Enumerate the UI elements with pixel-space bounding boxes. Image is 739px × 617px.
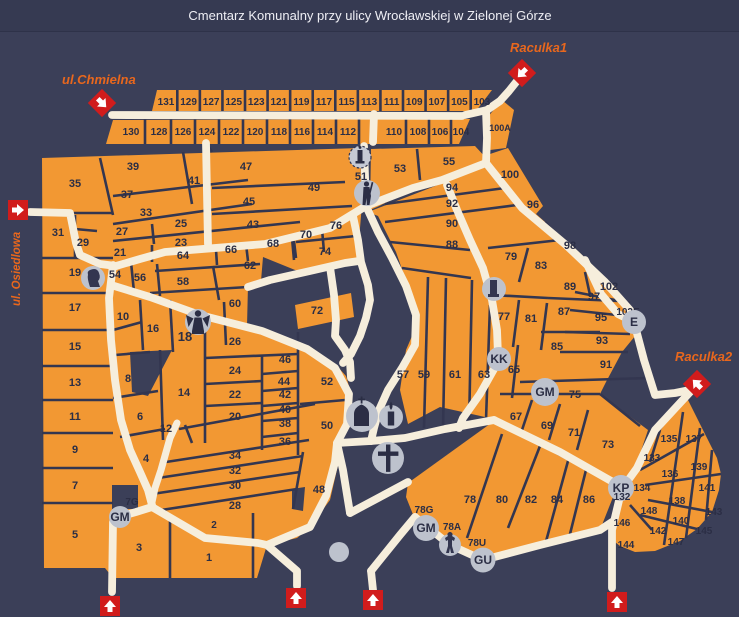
svg-text:GU: GU [474,553,492,567]
svg-text:113: 113 [361,97,378,108]
svg-text:148: 148 [641,506,658,517]
svg-text:80: 80 [496,494,508,506]
svg-text:71: 71 [568,427,580,439]
svg-text:95: 95 [595,312,607,324]
svg-text:8: 8 [125,373,131,385]
svg-text:98: 98 [564,240,576,252]
svg-text:13: 13 [69,377,81,389]
svg-text:78: 78 [464,494,476,506]
svg-text:64: 64 [177,250,190,262]
svg-text:146: 146 [614,518,631,529]
svg-text:12: 12 [160,423,172,435]
svg-text:4: 4 [143,453,150,465]
svg-text:50: 50 [321,420,333,432]
svg-text:30: 30 [229,480,241,492]
svg-text:11: 11 [69,411,81,423]
svg-text:121: 121 [271,97,288,108]
svg-text:6: 6 [137,411,143,423]
svg-text:38: 38 [279,418,291,430]
svg-text:104: 104 [453,127,470,138]
svg-text:49: 49 [308,182,320,194]
svg-text:131: 131 [158,97,175,108]
svg-text:88: 88 [446,239,458,251]
svg-text:41: 41 [188,175,200,187]
svg-text:62: 62 [244,260,256,272]
svg-text:48: 48 [313,484,325,496]
svg-text:109: 109 [406,97,423,108]
svg-text:83: 83 [535,260,547,272]
svg-text:77: 77 [498,311,510,323]
svg-text:68: 68 [267,238,279,250]
svg-text:36: 36 [279,436,291,448]
svg-text:103: 103 [474,97,491,108]
svg-text:GM: GM [110,510,129,524]
svg-text:79: 79 [505,251,517,263]
svg-text:94: 94 [446,182,459,194]
svg-text:24: 24 [229,365,242,377]
svg-text:105: 105 [451,97,468,108]
svg-text:58: 58 [177,276,189,288]
svg-text:72: 72 [311,305,323,317]
svg-text:78G: 78G [415,505,434,516]
svg-text:65: 65 [508,364,520,376]
svg-text:60: 60 [229,298,241,310]
svg-text:112: 112 [340,127,357,138]
svg-text:91: 91 [600,359,612,371]
svg-text:129: 129 [180,97,197,108]
svg-text:27: 27 [116,226,128,238]
svg-text:141: 141 [699,483,716,494]
svg-text:10: 10 [117,311,129,323]
svg-text:44: 44 [278,376,291,388]
svg-text:75: 75 [569,389,581,401]
svg-text:GM: GM [416,521,435,535]
svg-text:115: 115 [338,97,355,108]
svg-text:55: 55 [443,156,455,168]
svg-text:7G: 7G [125,497,139,508]
svg-text:GM: GM [535,385,554,399]
svg-text:145: 145 [696,526,713,537]
svg-text:5: 5 [72,529,78,541]
svg-text:126: 126 [175,127,192,138]
svg-text:19: 19 [69,267,81,279]
svg-text:134: 134 [634,483,651,494]
svg-text:21: 21 [114,247,126,259]
svg-text:132: 132 [614,492,631,503]
svg-text:20: 20 [229,411,241,423]
svg-text:2: 2 [211,520,217,531]
svg-text:15: 15 [69,341,81,353]
svg-text:78U: 78U [468,538,486,549]
svg-text:74: 74 [319,246,332,258]
svg-text:87: 87 [558,306,570,318]
svg-text:135: 135 [661,434,678,445]
svg-text:Raculka2: Raculka2 [675,349,733,364]
svg-text:122: 122 [223,127,240,138]
svg-text:1: 1 [206,552,212,564]
svg-text:81: 81 [525,313,537,325]
svg-text:125: 125 [225,97,242,108]
svg-text:63: 63 [478,369,490,381]
svg-text:117: 117 [316,97,333,108]
svg-text:84: 84 [551,494,564,506]
svg-text:69: 69 [541,420,553,432]
svg-text:31: 31 [52,227,64,239]
svg-text:47: 47 [240,161,252,173]
svg-text:100: 100 [501,169,519,181]
svg-text:86: 86 [583,494,595,506]
svg-text:16: 16 [147,323,159,335]
svg-text:73: 73 [602,439,614,451]
svg-text:KK: KK [490,352,508,366]
svg-text:142: 142 [650,526,667,537]
svg-text:70: 70 [300,229,312,241]
svg-text:139: 139 [691,462,708,473]
svg-text:96: 96 [527,199,539,211]
svg-text:90: 90 [446,218,458,230]
svg-text:32: 32 [229,465,241,477]
svg-text:54: 54 [109,269,122,281]
svg-text:130: 130 [123,127,140,138]
svg-text:128: 128 [151,127,168,138]
svg-text:118: 118 [271,127,288,138]
svg-text:106: 106 [432,127,449,138]
svg-text:9: 9 [72,444,78,456]
svg-text:ul. Osiedlowa: ul. Osiedlowa [11,231,23,306]
svg-text:39: 39 [127,161,139,173]
svg-text:14: 14 [178,387,191,399]
svg-text:43: 43 [247,219,259,231]
svg-text:93: 93 [596,335,608,347]
svg-text:34: 34 [229,450,242,462]
svg-text:110: 110 [386,127,403,138]
svg-text:56: 56 [134,272,146,284]
svg-text:85: 85 [551,341,563,353]
svg-text:119: 119 [293,97,310,108]
svg-text:89: 89 [564,281,576,293]
svg-text:57: 57 [397,369,409,381]
svg-text:78A: 78A [443,522,461,533]
svg-text:17: 17 [69,302,81,314]
svg-text:107: 107 [428,97,445,108]
svg-text:116: 116 [294,127,311,138]
svg-text:123: 123 [248,97,265,108]
svg-text:53: 53 [394,163,406,175]
svg-text:67: 67 [510,411,522,423]
svg-text:Raculka1: Raculka1 [510,40,567,55]
svg-text:108: 108 [410,127,427,138]
svg-text:82: 82 [525,494,537,506]
svg-text:33: 33 [140,207,152,219]
svg-text:136: 136 [662,469,679,480]
svg-text:Cmentarz Komunalny przy ulicy: Cmentarz Komunalny przy ulicy Wrocławski… [188,8,551,23]
svg-text:100A: 100A [489,123,511,133]
svg-text:124: 124 [199,127,216,138]
svg-text:97: 97 [588,291,600,303]
svg-text:127: 127 [203,97,220,108]
svg-text:138: 138 [669,496,686,507]
svg-text:76: 76 [330,220,342,232]
svg-text:61: 61 [449,369,461,381]
svg-text:137: 137 [686,434,703,445]
svg-text:3: 3 [136,542,142,554]
svg-text:ul.Chmielna: ul.Chmielna [62,72,136,87]
svg-text:23: 23 [175,237,187,249]
svg-text:92: 92 [446,198,458,210]
svg-text:133: 133 [644,453,661,464]
svg-text:25: 25 [175,218,187,230]
svg-text:46: 46 [279,354,291,366]
svg-text:147: 147 [668,537,685,548]
svg-text:37: 37 [121,189,133,201]
svg-text:120: 120 [247,127,264,138]
svg-text:66: 66 [225,244,237,256]
svg-text:35: 35 [69,178,81,190]
svg-text:140: 140 [673,516,690,527]
svg-text:29: 29 [77,237,89,249]
svg-text:102: 102 [600,281,618,293]
svg-text:143: 143 [706,507,723,518]
svg-text:26: 26 [229,336,241,348]
svg-text:E: E [630,315,638,329]
svg-text:59: 59 [418,369,430,381]
svg-text:42: 42 [279,389,291,401]
svg-text:45: 45 [243,196,255,208]
svg-text:40: 40 [279,404,291,416]
svg-text:22: 22 [229,389,241,401]
svg-text:28: 28 [229,500,241,512]
svg-text:7: 7 [72,480,78,492]
svg-text:114: 114 [317,127,334,138]
svg-text:52: 52 [321,376,333,388]
svg-text:144: 144 [618,540,635,551]
svg-text:111: 111 [384,97,400,108]
